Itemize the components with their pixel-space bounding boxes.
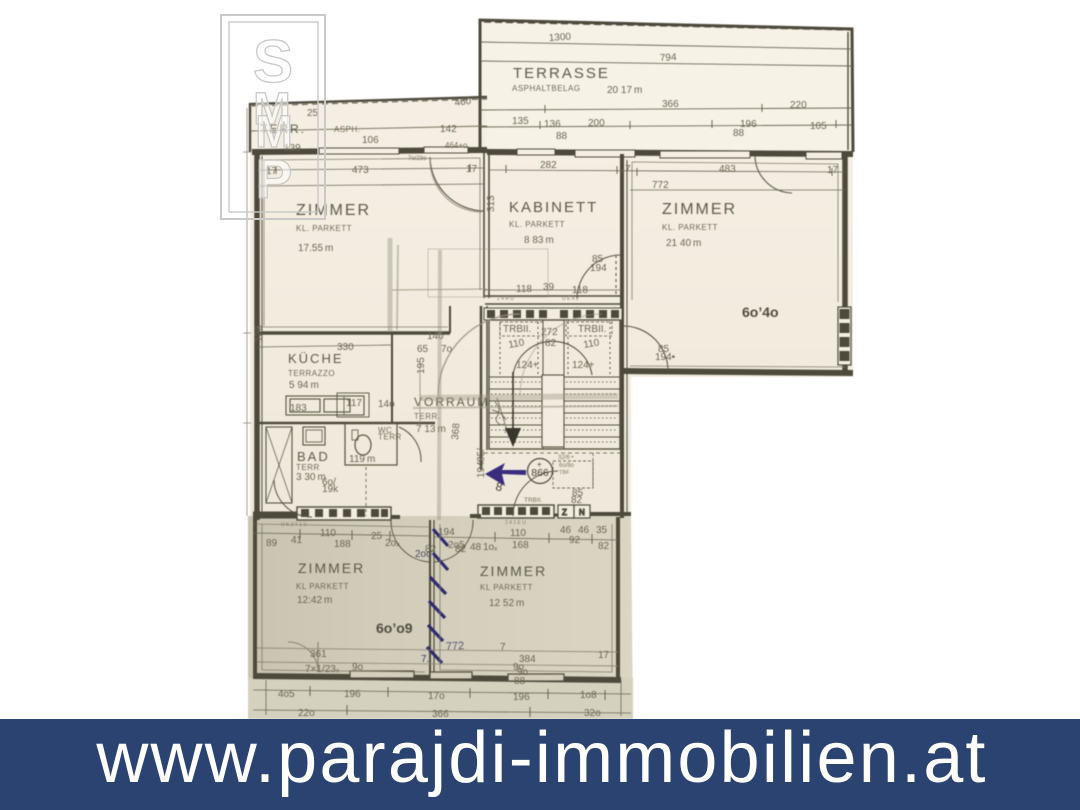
svg-text:N: N <box>579 508 585 517</box>
svg-text:KL PARKETT: KL PARKETT <box>296 582 349 591</box>
svg-text:46: 46 <box>578 525 590 536</box>
svg-text:17: 17 <box>466 164 478 175</box>
svg-text:82: 82 <box>545 338 557 349</box>
svg-text:82: 82 <box>598 541 610 552</box>
svg-text:361: 361 <box>310 649 327 660</box>
svg-text:330: 330 <box>337 342 354 353</box>
svg-text:12 52 m: 12 52 m <box>489 598 524 609</box>
svg-text:TBF: TBF <box>559 470 570 476</box>
svg-text:25: 25 <box>307 108 319 119</box>
svg-text:473: 473 <box>352 165 369 176</box>
svg-text:U E 4 2: U E 4 2 <box>562 296 579 302</box>
svg-text:TERRASSE: TERRASSE <box>513 65 610 82</box>
svg-text:35: 35 <box>596 525 608 536</box>
svg-text:88: 88 <box>556 131 568 142</box>
svg-text:2oo: 2oo <box>415 549 432 560</box>
svg-text:772: 772 <box>446 640 465 653</box>
svg-text:5 94 m: 5 94 m <box>289 380 319 391</box>
svg-text:32/6 •: 32/6 • <box>558 455 573 461</box>
svg-text:7×1/23ₓ: 7×1/23ₓ <box>305 664 340 675</box>
svg-text:KL. PARKETT: KL. PARKETT <box>509 220 565 229</box>
svg-text:282: 282 <box>540 160 557 171</box>
svg-text:483: 483 <box>719 164 736 175</box>
svg-text:194•: 194• <box>476 457 487 478</box>
svg-text:46: 46 <box>560 525 572 536</box>
svg-text:6o/8o: 6o/8o <box>559 463 575 469</box>
svg-text:17: 17 <box>598 650 610 661</box>
svg-text:ASPHALTBELAG: ASPHALTBELAG <box>512 84 581 93</box>
svg-text:194•: 194• <box>655 352 676 363</box>
svg-text:183: 183 <box>290 403 307 414</box>
svg-text:142: 142 <box>440 124 457 135</box>
svg-text:313: 313 <box>486 195 497 212</box>
svg-text:39: 39 <box>543 282 555 293</box>
svg-text:2 4 1 E U: 2 4 1 E U <box>505 520 526 526</box>
svg-text:P: P <box>256 148 293 210</box>
svg-text:195: 195 <box>416 357 427 374</box>
svg-text:366: 366 <box>662 99 679 110</box>
svg-text:136: 136 <box>254 325 265 342</box>
svg-text:772: 772 <box>652 180 669 191</box>
svg-text:48: 48 <box>470 542 482 553</box>
svg-text:TERRAZZO: TERRAZZO <box>288 369 335 378</box>
svg-text:TERR.: TERR. <box>414 412 441 421</box>
svg-text:6o’o9: 6o’o9 <box>376 620 413 636</box>
svg-text:ZIMMER: ZIMMER <box>298 560 365 576</box>
svg-text:110: 110 <box>510 528 526 539</box>
svg-text:ZIMMER: ZIMMER <box>662 201 737 218</box>
svg-text:368: 368 <box>450 422 462 440</box>
svg-text:8 83 m: 8 83 m <box>524 235 554 246</box>
svg-text:220: 220 <box>790 100 807 111</box>
svg-text:Z: Z <box>562 508 567 517</box>
svg-text:KL PARKETT: KL PARKETT <box>480 583 533 592</box>
svg-text:464+o: 464+o <box>445 141 468 150</box>
svg-text:ZIMMER: ZIMMER <box>480 563 547 579</box>
svg-text:89: 89 <box>266 538 278 549</box>
svg-text:41: 41 <box>291 535 303 546</box>
svg-text:168: 168 <box>512 540 529 551</box>
svg-text:82: 82 <box>571 495 583 506</box>
svg-text:106: 106 <box>362 135 379 146</box>
svg-text:TERR: TERR <box>296 463 320 472</box>
svg-text:200: 200 <box>588 118 605 129</box>
svg-text:+: + <box>537 460 542 469</box>
svg-text:17.55 m: 17.55 m <box>298 243 333 254</box>
svg-text:88: 88 <box>514 676 526 687</box>
svg-text:1300: 1300 <box>548 31 571 44</box>
svg-text:7.: 7. <box>421 654 429 665</box>
svg-text:1oₓ: 1oₓ <box>483 542 498 553</box>
svg-text:110: 110 <box>320 528 336 539</box>
svg-text:TRBII.: TRBII. <box>578 324 606 335</box>
svg-text:25: 25 <box>371 531 383 542</box>
svg-text:119 m: 119 m <box>349 454 375 465</box>
svg-text:KABINETT: KABINETT <box>509 199 598 216</box>
svg-text:194: 194 <box>590 263 607 274</box>
svg-text:7o: 7o <box>441 344 453 355</box>
svg-text:88: 88 <box>733 128 745 139</box>
svg-text:196: 196 <box>513 692 530 703</box>
svg-text:188: 188 <box>334 539 351 550</box>
svg-text:KÜCHE: KÜCHE <box>288 351 344 366</box>
svg-text:7: 7 <box>500 642 506 653</box>
svg-text:17: 17 <box>827 165 839 176</box>
svg-text:19k: 19k <box>322 484 339 495</box>
svg-text:KL. PARKETT: KL. PARKETT <box>296 224 352 233</box>
svg-text:TRBII.: TRBII. <box>524 497 543 504</box>
svg-text:6o’4o: 6o’4o <box>742 304 779 320</box>
svg-text:105: 105 <box>810 121 827 132</box>
svg-text:TRBII.: TRBII. <box>503 324 531 335</box>
svg-text:12:42 m: 12:42 m <box>297 595 332 606</box>
svg-text:794: 794 <box>660 52 678 64</box>
svg-text:118: 118 <box>572 285 588 296</box>
svg-text:118: 118 <box>516 284 532 295</box>
svg-text:21 40 m: 21 40 m <box>666 238 701 249</box>
svg-text:ZIMMER: ZIMMER <box>296 202 371 219</box>
svg-text:www.parajdi-immobilien.at: www.parajdi-immobilien.at <box>95 718 987 798</box>
svg-text:135: 135 <box>512 116 529 127</box>
svg-text:136: 136 <box>544 119 561 130</box>
svg-text:ASPH.: ASPH. <box>334 125 361 134</box>
svg-text:KL. PARKETT: KL. PARKETT <box>662 223 718 232</box>
svg-text:92: 92 <box>569 535 581 546</box>
svg-text:7: 7 <box>625 164 631 175</box>
svg-text:1o8: 1o8 <box>580 690 597 701</box>
svg-text:BAD: BAD <box>297 449 330 464</box>
svg-text:117: 117 <box>346 398 362 409</box>
svg-text:14o: 14o <box>378 399 395 410</box>
svg-text:20 17 m: 20 17 m <box>607 85 642 96</box>
svg-text:17o: 17o <box>428 691 445 702</box>
svg-text:65: 65 <box>417 344 429 355</box>
svg-text:124+: 124+ <box>572 360 595 371</box>
